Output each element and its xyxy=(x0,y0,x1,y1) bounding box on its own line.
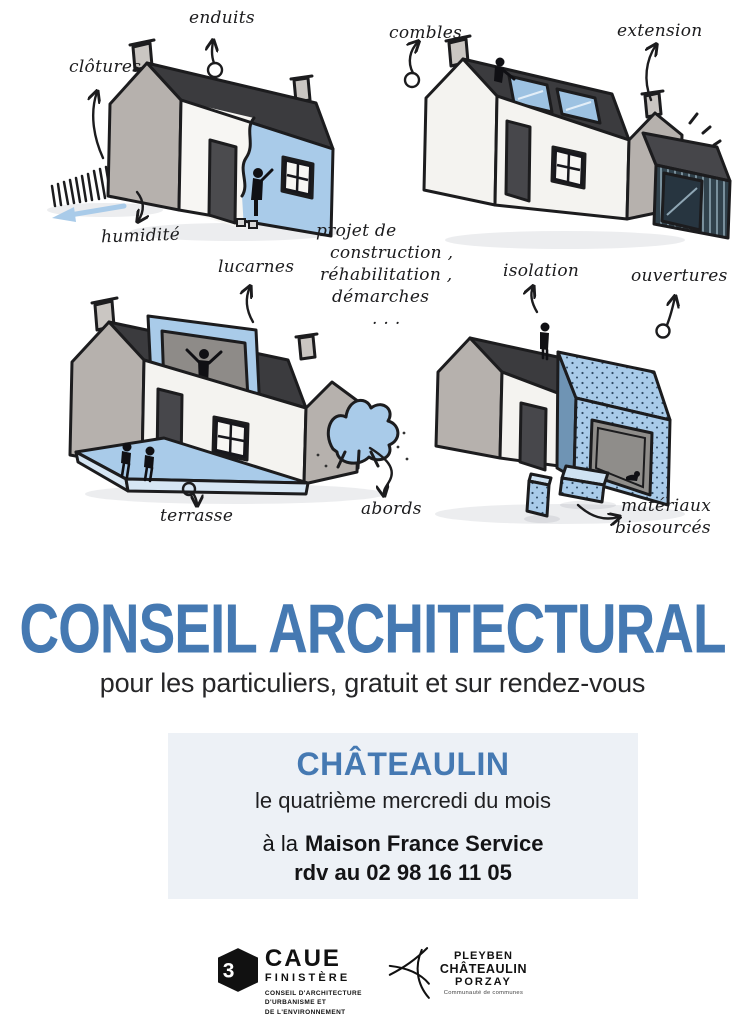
label-extension: extension xyxy=(617,21,703,41)
label-abords: abords xyxy=(361,499,422,519)
community-name-1: PLEYBEN xyxy=(440,950,527,962)
pleyben-chateaulin-porzay-logo: PLEYBEN CHÂTEAULIN PORZAY Communauté de … xyxy=(388,944,527,1002)
label-clotures: clôtures xyxy=(69,57,141,77)
caue-acronym: CAUE xyxy=(265,948,362,971)
caue-region: FINISTÈRE xyxy=(265,972,362,984)
label-lucarnes: lucarnes xyxy=(218,257,294,277)
location-name: Maison France Service xyxy=(305,831,543,856)
caue-finistere-logo: 3 CAUE FINISTÈRE CONSEIL D'ARCHITECTURE … xyxy=(218,948,362,1017)
house-sketch-isolation-ouvertures xyxy=(435,323,685,525)
schedule-text: le quatrième mercredi du mois xyxy=(168,788,638,814)
footer-logos: 3 CAUE FINISTÈRE CONSEIL D'ARCHITECTURE … xyxy=(0,948,745,1017)
label-humidite: humidité xyxy=(101,225,181,248)
sparkle-dashes xyxy=(690,114,720,145)
poster-subtitle: pour les particuliers, gratuit et sur re… xyxy=(0,668,745,699)
location-line: à laMaison France Service xyxy=(168,831,638,857)
label-combles: combles xyxy=(389,23,462,43)
label-materiaux: matériaux xyxy=(621,496,711,516)
house-sketch-combles-extension xyxy=(424,36,730,249)
label-ouvertures: ouvertures xyxy=(631,266,728,286)
caue-cube-icon: 3 xyxy=(218,948,258,992)
community-swoosh-icon xyxy=(388,944,436,1002)
label-isolation: isolation xyxy=(503,261,579,281)
poster: enduits clôtures humidité combles extens… xyxy=(0,0,745,1024)
location-prefix: à la xyxy=(263,831,298,856)
info-box: CHÂTEAULIN le quatrième mercredi du mois… xyxy=(168,733,638,899)
community-tagline: Communauté de communes xyxy=(440,990,527,996)
label-project-note: projet de construction , réhabilitation … xyxy=(316,220,453,330)
caue-subtitle: CONSEIL D'ARCHITECTURE D'URBANISME ET DE… xyxy=(265,989,362,1017)
label-enduits: enduits xyxy=(189,8,255,28)
label-biosources: biosourcés xyxy=(615,518,711,538)
community-name-3: PORZAY xyxy=(440,976,527,988)
svg-text:3: 3 xyxy=(223,960,235,983)
phone-line: rdv au 02 98 16 11 05 xyxy=(168,860,638,886)
community-name-2: CHÂTEAULIN xyxy=(440,962,527,976)
poster-title: CONSEIL ARCHITECTURAL xyxy=(0,588,745,669)
label-terrasse: terrasse xyxy=(160,506,233,526)
city-name: CHÂTEAULIN xyxy=(168,746,638,783)
